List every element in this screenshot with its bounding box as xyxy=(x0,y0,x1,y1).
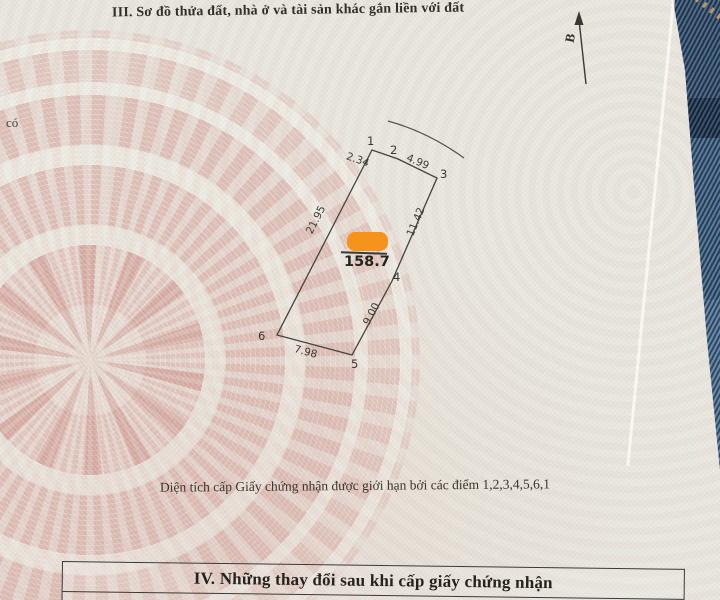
vertex-label-3: 3 xyxy=(440,167,447,181)
parcel-diagram xyxy=(0,0,720,600)
left-text-fragment: có xyxy=(6,115,18,131)
edge-length-3-4: 11.42 xyxy=(405,206,428,238)
photo-of-certificate: III. Sơ đồ thửa đất, nhà ở và tài sản kh… xyxy=(0,0,720,600)
bronze-drum-watermark xyxy=(0,30,420,600)
vertex-label-4: 4 xyxy=(393,270,400,284)
section-iv-header-row: IV. Những thay đổi sau khi cấp giấy chứn… xyxy=(63,562,684,600)
denim-stitch-seam xyxy=(695,0,720,22)
edge-length-5-6: 7.98 xyxy=(293,343,319,361)
parcel-area-value: 158.7 xyxy=(344,254,390,270)
north-arrow-head xyxy=(575,11,584,25)
section-iii-title: III. Sơ đồ thửa đất, nhà ở và tài sản kh… xyxy=(112,1,465,22)
vertex-label-2: 2 xyxy=(390,143,397,157)
vertex-label-5: 5 xyxy=(351,357,358,371)
certificate-note: Diện tích cấp Giấy chứng nhận được giới … xyxy=(160,476,550,495)
adjacent-road-line xyxy=(388,121,464,158)
vertex-label-6: 6 xyxy=(258,329,265,343)
section-iv-table: IV. Những thay đổi sau khi cấp giấy chứn… xyxy=(61,561,685,600)
section-iv-title: IV. Những thay đổi sau khi cấp giấy chứn… xyxy=(194,568,553,593)
edge-length-1-2: 2.34 xyxy=(345,151,371,170)
vertex-label-1: 1 xyxy=(367,134,374,148)
redaction-highlight xyxy=(347,232,388,251)
edge-length-2-3: 4.99 xyxy=(405,152,431,172)
north-label: B xyxy=(562,32,579,44)
edge-length-6-1: 21.95 xyxy=(304,204,328,236)
certificate-page: III. Sơ đồ thửa đất, nhà ở và tài sản kh… xyxy=(0,0,720,600)
drum-star-pattern xyxy=(0,245,205,475)
north-arrow-shaft xyxy=(579,20,586,84)
edge-length-4-5: 9.00 xyxy=(361,301,383,327)
guilloche-texture xyxy=(0,0,720,600)
